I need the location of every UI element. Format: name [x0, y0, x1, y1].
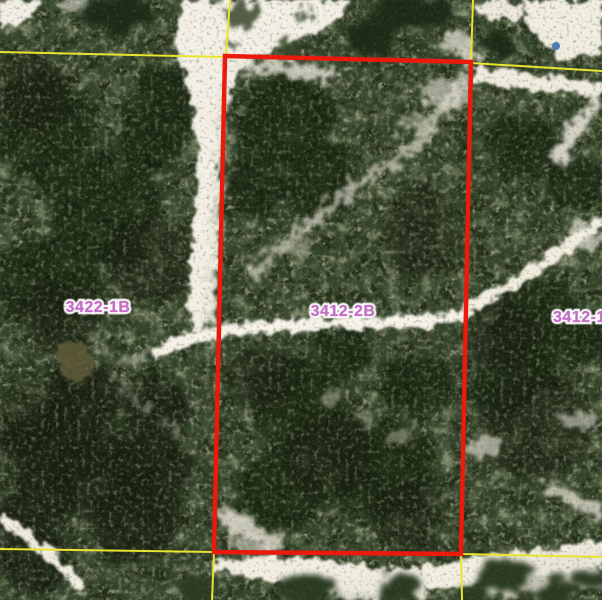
svg-text:3412-1: 3412-1	[553, 309, 602, 326]
svg-text:3412-2B: 3412-2B	[311, 303, 376, 320]
svg-text:3422-1B: 3422-1B	[66, 299, 131, 316]
